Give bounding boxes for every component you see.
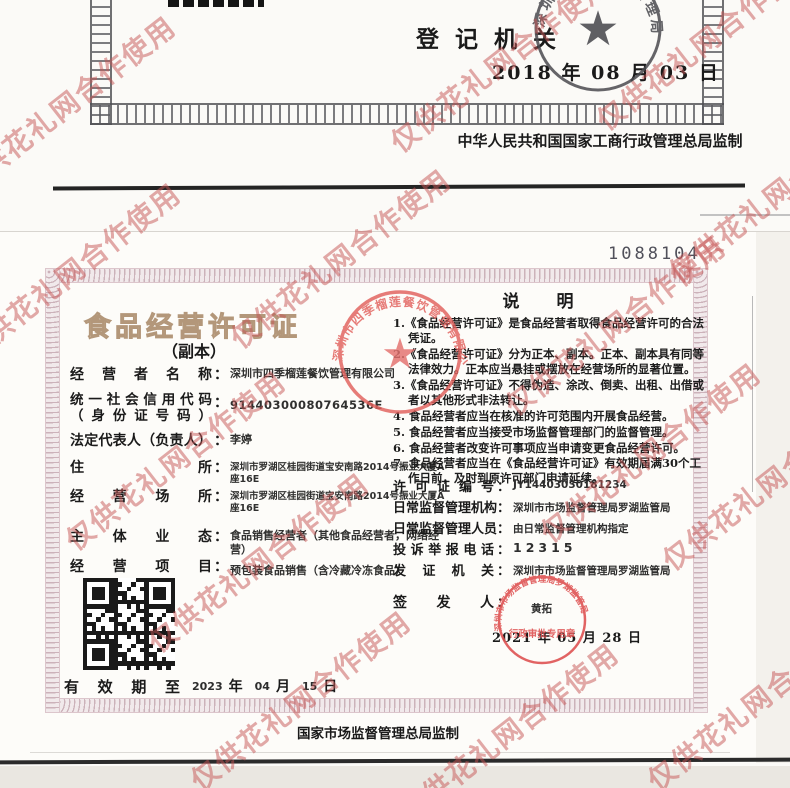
field-label: 签发人 — [393, 592, 494, 612]
license-issuer-footer: 中华人民共和国国家工商行政管理总局监制 — [420, 130, 780, 151]
field-permit-number: 许可证编号 ： JY14403030181234 — [393, 476, 627, 495]
approval-seal: 深圳市市场监督管理局罗湖监管局 行政审批专用章 — [482, 560, 602, 680]
star-icon: ★ — [576, 1, 619, 57]
day-unit: 日 — [323, 676, 337, 696]
validity-day: 15 — [302, 676, 317, 693]
permit-paper-edge — [756, 232, 790, 763]
validity-row: 有效期至 2023 年 04 月 15 日 — [64, 676, 337, 697]
scan-band-line — [700, 214, 790, 216]
colon: ： — [497, 518, 510, 537]
field-business-premises: 经营场所 ： 深圳市罗湖区桂园街道宝安南路2014号振业大厦A座16E — [70, 486, 448, 516]
field-label: 投诉举报电话 — [393, 539, 494, 558]
field-label: 经营项目 — [70, 556, 212, 576]
validity-year: 2023 — [192, 676, 223, 693]
company-seal: 深圳市四季榴莲餐饮管理有限公司 ★ — [320, 272, 480, 432]
field-label: 住所 — [70, 457, 212, 477]
permit-subtitle: （副本） — [84, 338, 304, 362]
colon: ： — [214, 556, 228, 576]
colon: ： — [214, 526, 228, 546]
field-business-scope: 经营项目 ： 预包装食品销售（含冷藏冷冻食品） — [70, 556, 448, 578]
colon: ： — [497, 497, 510, 516]
registry-seal: 深圳市市场监督管理局 ★ — [518, 0, 678, 108]
validity-label: 有效期至 — [64, 676, 180, 697]
field-value: 由日常监督管理机构指定 — [513, 518, 629, 536]
cropped-text-fragment — [168, 0, 264, 7]
star-icon: ★ — [381, 329, 419, 378]
scanned-certificates-page: 登记机关 2018 年 08 月 03 日 深圳市市场监督管理局 ★ 中华人民共… — [0, 0, 790, 788]
colon: ： — [497, 539, 510, 558]
lace-border-bottom — [45, 698, 708, 713]
month-unit: 月 — [276, 676, 290, 696]
validity-month: 04 — [255, 676, 270, 693]
field-label: 日常监督管理人员 — [393, 518, 494, 537]
year-unit: 年 — [229, 676, 243, 696]
field-value: JY14403030181234 — [513, 476, 627, 491]
field-business-format: 主体业态 ： 食品销售经营者（其他食品经营者，网络经营） — [70, 526, 448, 558]
field-supervision-personnel: 日常监督管理人员 ： 由日常监督管理机构指定 — [393, 518, 629, 537]
field-label: 主体业态 — [70, 526, 212, 546]
field-label: 统一社会信用代码 （身份证号码） — [70, 392, 212, 424]
colon: ： — [214, 364, 228, 384]
field-label: 经营场所 — [70, 486, 212, 506]
field-supervision-agency: 日常监督管理机构 ： 深圳市市场监督管理局罗湖监管局 — [393, 497, 671, 516]
field-label: 发证机关 — [393, 560, 494, 579]
field-value: 12315 — [513, 539, 577, 555]
svg-text:深圳市市场监督管理局罗湖监管局: 深圳市市场监督管理局罗湖监管局 — [493, 574, 589, 632]
scan-edge-line — [53, 183, 745, 190]
field-value: 深圳市市场监督管理局罗湖监管局 — [513, 497, 671, 515]
lace-border-left — [45, 268, 60, 713]
field-label-line2: （身份证号码） — [70, 408, 212, 424]
scan-edge-line-faint — [30, 752, 730, 753]
field-residence: 住所 ： 深圳市罗湖区桂园街道宝安南路2014号振业大厦A座16E — [70, 457, 448, 487]
field-legal-representative: 法定代表人（负责人） ： 李婷 — [70, 430, 448, 450]
scan-background-strip — [0, 766, 790, 788]
permit-issuer-footer: 国家市场监督管理总局监制 — [250, 722, 506, 742]
field-label-line1: 统一社会信用代码 — [70, 392, 212, 408]
qr-code — [83, 578, 175, 670]
colon: ： — [214, 486, 228, 506]
field-label: 日常监督管理机构 — [393, 497, 494, 516]
colon: ： — [214, 392, 228, 412]
field-label: 许可证编号 — [393, 476, 494, 495]
field-label: 法定代表人（负责人） — [70, 430, 212, 450]
note-item: 6. 食品经营者改变许可事项应当申请变更食品经营许可。 — [393, 441, 707, 456]
field-label: 经营者名称 — [70, 364, 212, 384]
colon: ： — [214, 430, 228, 450]
field-complaint-hotline: 投诉举报电话 ： 12315 — [393, 539, 577, 558]
colon: ： — [497, 476, 510, 495]
approval-seal-line-text: 行政审批专用章 — [508, 628, 576, 640]
permit-serial-number: 1088104 — [608, 244, 701, 264]
paper-fold-line — [752, 296, 753, 492]
colon: ： — [214, 457, 228, 477]
approval-seal-arc-text: 深圳市市场监督管理局罗湖监管局 — [493, 574, 589, 632]
